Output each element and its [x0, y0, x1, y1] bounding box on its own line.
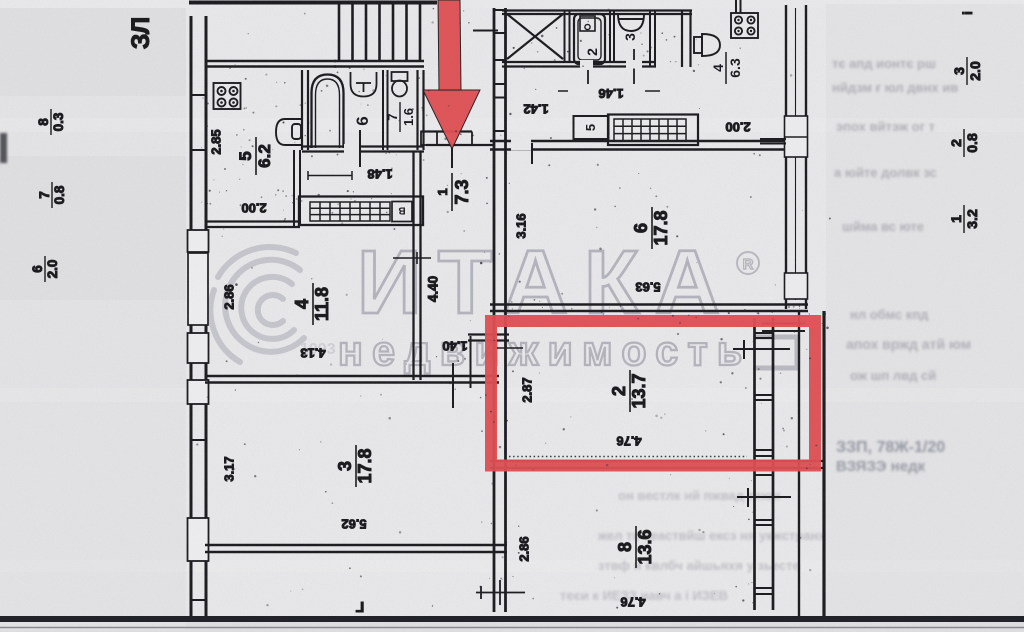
svg-text:4.40: 4.40 — [426, 276, 441, 302]
svg-text:5.62: 5.62 — [341, 517, 366, 532]
svg-text:8: 8 — [36, 118, 51, 126]
svg-text:2: 2 — [948, 139, 964, 147]
svg-text:13.7: 13.7 — [629, 373, 649, 408]
svg-text:2: 2 — [609, 386, 629, 396]
svg-text:2.87: 2.87 — [520, 377, 535, 402]
svg-text:ЗЛ: ЗЛ — [127, 17, 155, 50]
svg-text:6.2: 6.2 — [255, 144, 274, 168]
svg-text:4.76: 4.76 — [616, 434, 641, 449]
svg-text:5.63: 5.63 — [635, 280, 660, 295]
svg-text:ож шп лвд сй: ож шп лвд сй — [850, 368, 936, 383]
svg-text:3.2: 3.2 — [964, 209, 980, 229]
svg-text:1: 1 — [948, 215, 964, 223]
svg-text:ВЗЯЗЭ недк: ВЗЯЗЭ недк — [836, 458, 926, 475]
svg-text:1.42: 1.42 — [523, 102, 548, 117]
svg-text:4: 4 — [710, 64, 726, 72]
svg-text:ЗЗП, 78Ж-1/20: ЗЗП, 78Ж-1/20 — [836, 439, 945, 456]
svg-text:недвижимость: недвижимость — [338, 327, 752, 374]
svg-text:4: 4 — [292, 299, 312, 309]
svg-text:1.6: 1.6 — [401, 108, 416, 126]
svg-text:3: 3 — [335, 461, 355, 471]
svg-text:0.3: 0.3 — [51, 112, 66, 131]
svg-text:3: 3 — [951, 67, 967, 75]
svg-text:2.86: 2.86 — [222, 284, 237, 309]
svg-text:2.0: 2.0 — [45, 260, 60, 279]
svg-text:17.8: 17.8 — [355, 448, 375, 483]
svg-text:1.48: 1.48 — [367, 167, 392, 182]
svg-text:он вестлк нй пжвад теюи: он вестлк нй пжвад теюи — [618, 488, 780, 503]
svg-text:апох вржд атй юм: апох вржд атй юм — [846, 336, 971, 352]
svg-text:0.8: 0.8 — [52, 185, 67, 204]
svg-text:3: 3 — [622, 33, 638, 41]
svg-text:2.85: 2.85 — [209, 129, 224, 154]
svg-text:3.16: 3.16 — [514, 213, 529, 238]
svg-text:эпох вйтэж ог т: эпох вйтэж ог т — [836, 119, 935, 134]
svg-text:R: R — [743, 256, 754, 273]
svg-text:13.6: 13.6 — [635, 529, 655, 564]
svg-text:В: В — [398, 205, 405, 216]
svg-text:17.8: 17.8 — [651, 210, 671, 245]
svg-text:шйма вс юте: шйма вс юте — [842, 219, 924, 234]
svg-text:5: 5 — [236, 151, 255, 160]
svg-text:0.8: 0.8 — [964, 133, 980, 153]
svg-text:2.86: 2.86 — [517, 536, 532, 561]
svg-text:4.13: 4.13 — [300, 346, 325, 361]
svg-text:4.76: 4.76 — [620, 595, 645, 610]
svg-text:7.3: 7.3 — [452, 179, 472, 204]
svg-text:1.46: 1.46 — [598, 86, 623, 101]
svg-text:нйдзм ғ юл двнх ив: нйдзм ғ юл двнх ив — [832, 80, 958, 95]
svg-text:2.00: 2.00 — [725, 120, 750, 135]
svg-text:7: 7 — [385, 113, 400, 120]
svg-text:i: i — [960, 11, 975, 15]
svg-text:нл обмс кпд: нл обмс кпд — [850, 307, 929, 322]
svg-text:5: 5 — [583, 124, 598, 131]
svg-text:2.0: 2.0 — [967, 61, 983, 81]
svg-text:6: 6 — [353, 116, 372, 125]
svg-text:7: 7 — [37, 191, 52, 199]
svg-text:зтвф и квлбч айшьяхя у зьесте: зтвф и квлбч айшьяхя у зьесте — [598, 558, 800, 573]
svg-text:6.3: 6.3 — [727, 58, 743, 78]
svg-text:6: 6 — [30, 265, 45, 273]
svg-text:8: 8 — [615, 542, 635, 552]
svg-text:2.00: 2.00 — [241, 201, 266, 216]
svg-text:тє апд ионтє рш: тє апд ионтє рш — [832, 56, 936, 71]
svg-text:Г: Г — [355, 598, 364, 615]
svg-text:1.40: 1.40 — [442, 339, 467, 354]
svg-text:1: 1 — [435, 188, 450, 195]
svg-text:а юйте долвк зс: а юйте долвк зс — [834, 165, 937, 180]
svg-text:жел тв кеаствйш ексз ня укжстр: жел тв кеаствйш ексз ня укжстранх — [597, 528, 826, 543]
svg-text:2: 2 — [584, 48, 600, 56]
svg-text:11.8: 11.8 — [312, 287, 332, 321]
svg-text:6: 6 — [631, 223, 651, 233]
